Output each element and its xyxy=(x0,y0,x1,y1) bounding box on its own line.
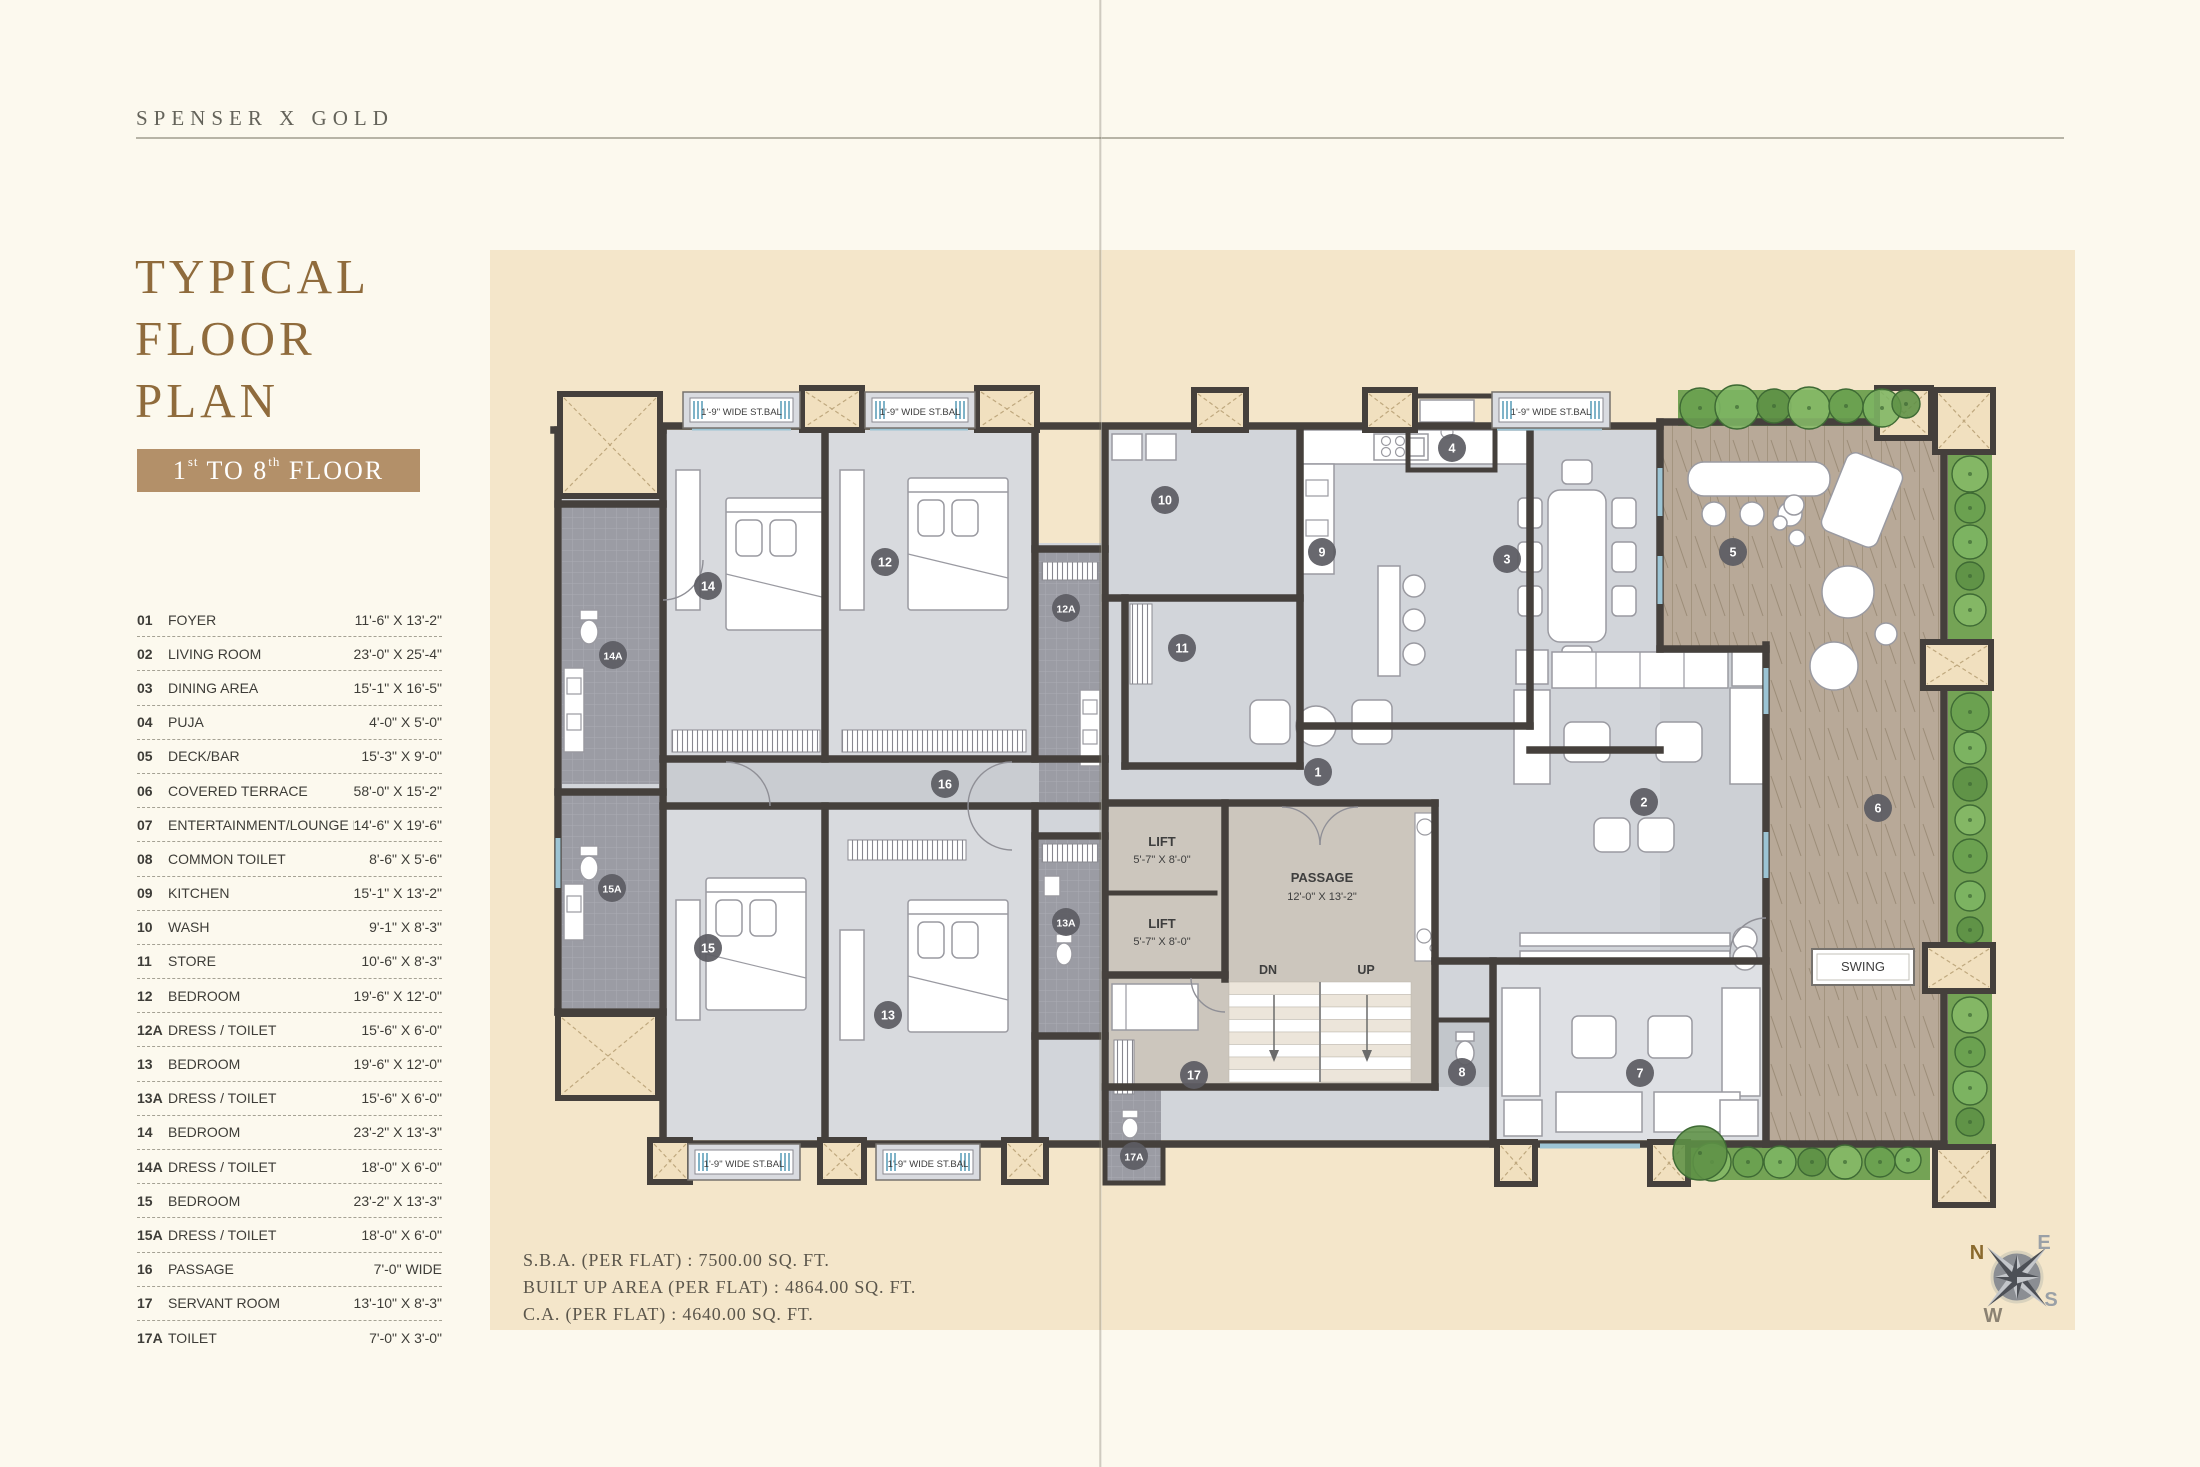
side-table xyxy=(1773,516,1787,530)
svg-text:7: 7 xyxy=(1637,1066,1644,1080)
legend-number: 13A xyxy=(137,1090,168,1106)
balcony-label: 1'-9" WIDE ST.BAL xyxy=(704,1159,785,1170)
legend-room-name: SERVANT ROOM xyxy=(168,1295,354,1311)
dresser xyxy=(840,930,864,1040)
stool xyxy=(1403,643,1425,665)
legend-row: 14BEDROOM23'-2" X 13'-3" xyxy=(137,1116,442,1150)
legend-row: 16PASSAGE7'-0" WIDE xyxy=(137,1253,442,1287)
svg-text:4: 4 xyxy=(1449,441,1456,455)
balcony-label: 1'-9" WIDE ST.BAL xyxy=(701,407,782,418)
svg-text:17A: 17A xyxy=(1124,1151,1144,1163)
bed xyxy=(908,478,1008,610)
stool xyxy=(1740,502,1764,526)
balcony: 1'-9" WIDE ST.BAL xyxy=(1492,392,1610,428)
room-marker-16: 16 xyxy=(931,770,959,798)
stool xyxy=(1403,609,1425,631)
legend-room-name: PASSAGE xyxy=(168,1261,374,1277)
legend-number: 15 xyxy=(137,1193,168,1209)
legend-room-name: TOILET xyxy=(168,1330,369,1346)
wc xyxy=(580,620,598,644)
balcony: 1'-9" WIDE ST.BAL xyxy=(876,1144,980,1180)
lift-label: LIFT xyxy=(1148,916,1175,931)
banner-text: TO 8 xyxy=(199,456,269,486)
room-marker-13A: 13A xyxy=(1052,908,1080,936)
legend-row: 17ATOILET7'-0" X 3'-0" xyxy=(137,1321,442,1354)
deck-chair xyxy=(1810,642,1858,690)
lift-dim: 5'-7" X 8'-0" xyxy=(1133,854,1190,866)
legend-room-name: BEDROOM xyxy=(168,1056,354,1072)
balcony: 1'-9" WIDE ST.BAL xyxy=(865,392,975,428)
legend-room-dimension: 19'-6" X 12'-0" xyxy=(354,988,442,1004)
staircase xyxy=(1229,982,1411,1082)
dresser xyxy=(840,470,864,610)
legend-row: 07ENTERTAINMENT/LOUNGE ROOM14'-6" X 19'-… xyxy=(137,808,442,842)
deck-chair xyxy=(1822,566,1874,618)
stairs-dn-label: DN xyxy=(1259,963,1277,977)
legend-room-dimension: 7'-0" WIDE xyxy=(374,1261,442,1277)
svg-text:9: 9 xyxy=(1319,545,1326,559)
swing-label: SWING xyxy=(1812,949,1914,985)
room-legend: 01FOYER11'-6" X 13'-2"02LIVING ROOM23'-0… xyxy=(137,603,442,1354)
legend-room-name: DRESS / TOILET xyxy=(168,1022,361,1038)
wc xyxy=(1122,1118,1138,1138)
svg-text:6: 6 xyxy=(1875,801,1882,815)
room-marker-7: 7 xyxy=(1626,1059,1654,1087)
bed xyxy=(726,498,826,630)
legend-row: 12BEDROOM19'-6" X 12'-0" xyxy=(137,979,442,1013)
legend-row: 13ADRESS / TOILET15'-6" X 6'-0" xyxy=(137,1082,442,1116)
legend-room-name: BEDROOM xyxy=(168,1193,354,1209)
wardrobe xyxy=(848,840,966,860)
legend-room-name: LIVING ROOM xyxy=(168,646,354,662)
page-fold-line xyxy=(1099,0,1102,1467)
legend-row: 11STORE10'-6" X 8'-3" xyxy=(137,945,442,979)
side-table xyxy=(1789,530,1805,546)
legend-number: 06 xyxy=(137,783,168,799)
legend-room-dimension: 19'-6" X 12'-0" xyxy=(354,1056,442,1072)
svg-text:12A: 12A xyxy=(1056,603,1076,615)
legend-number: 09 xyxy=(137,885,168,901)
lift-dim: 5'-7" X 8'-0" xyxy=(1133,936,1190,948)
balcony-label: 1'-9" WIDE ST.BAL xyxy=(880,407,961,418)
legend-room-name: COMMON TOILET xyxy=(168,851,369,867)
legend-row: 09KITCHEN15'-1" X 13'-2" xyxy=(137,877,442,911)
room-passage-16 xyxy=(663,759,1105,806)
wc xyxy=(580,856,598,880)
legend-room-dimension: 11'-6" X 13'-2" xyxy=(355,612,442,628)
legend-room-dimension: 23'-2" X 13'-3" xyxy=(354,1124,442,1140)
page-title-line: FLOOR xyxy=(135,308,370,370)
svg-text:17: 17 xyxy=(1187,1068,1201,1082)
stairs-up-label: UP xyxy=(1357,963,1374,977)
area-line: S.B.A. (PER FLAT) : 7500.00 SQ. FT. xyxy=(523,1247,916,1274)
legend-room-name: BEDROOM xyxy=(168,1124,354,1140)
passage-dim: 12'-0" X 13'-2" xyxy=(1287,891,1357,903)
legend-row: 15BEDROOM23'-2" X 13'-3" xyxy=(137,1184,442,1218)
legend-row: 10WASH9'-1" X 8'-3" xyxy=(137,911,442,945)
balcony: 1'-9" WIDE ST.BAL xyxy=(688,1144,800,1180)
legend-row: 17SERVANT ROOM13'-10" X 8'-3" xyxy=(137,1287,442,1321)
room-marker-8: 8 xyxy=(1448,1058,1476,1086)
room-marker-6: 6 xyxy=(1864,794,1892,822)
banner-superscript: st xyxy=(188,454,199,470)
legend-number: 12A xyxy=(137,1022,168,1038)
svg-text:SWING: SWING xyxy=(1841,959,1885,974)
legend-room-dimension: 15'-3" X 9'-0" xyxy=(361,748,442,764)
banner-text: 1 xyxy=(173,456,188,486)
legend-room-name: PUJA xyxy=(168,714,369,730)
legend-room-name: BEDROOM xyxy=(168,988,354,1004)
svg-text:2: 2 xyxy=(1641,795,1648,809)
stool xyxy=(1702,502,1726,526)
washer xyxy=(1146,434,1176,460)
legend-number: 02 xyxy=(137,646,168,662)
room-marker-11: 11 xyxy=(1168,634,1196,662)
legend-number: 05 xyxy=(137,748,168,764)
compass-s: S xyxy=(2044,1289,2057,1311)
room-marker-3: 3 xyxy=(1493,545,1521,573)
legend-number: 07 xyxy=(137,817,168,833)
legend-row: 08COMMON TOILET8'-6" X 5'-6" xyxy=(137,842,442,876)
legend-number: 14 xyxy=(137,1124,168,1140)
legend-room-dimension: 14'-6" X 19'-6" xyxy=(354,817,442,833)
room-marker-12: 12 xyxy=(871,548,899,576)
legend-row: 14ADRESS / TOILET18'-0" X 6'-0" xyxy=(137,1150,442,1184)
legend-room-dimension: 13'-10" X 8'-3" xyxy=(354,1295,442,1311)
room-marker-17: 17 xyxy=(1180,1061,1208,1089)
room-marker-5: 5 xyxy=(1719,538,1747,566)
svg-text:15A: 15A xyxy=(602,883,622,895)
svg-text:13A: 13A xyxy=(1056,917,1076,929)
legend-room-dimension: 15'-6" X 6'-0" xyxy=(361,1090,442,1106)
legend-number: 10 xyxy=(137,919,168,935)
legend-room-dimension: 15'-1" X 16'-5" xyxy=(354,680,442,696)
compass-e: E xyxy=(2037,1232,2050,1254)
room-marker-17A: 17A xyxy=(1120,1142,1148,1170)
page-title-line: PLAN xyxy=(135,370,370,432)
legend-row: 03DINING AREA15'-1" X 16'-5" xyxy=(137,671,442,705)
legend-room-dimension: 15'-1" X 13'-2" xyxy=(354,885,442,901)
legend-row: 04PUJA4'-0" X 5'-0" xyxy=(137,706,442,740)
legend-room-name: DECK/BAR xyxy=(168,748,361,764)
legend-room-name: COVERED TERRACE xyxy=(168,783,354,799)
servant-bed xyxy=(1112,984,1198,1030)
bed xyxy=(908,900,1008,1032)
legend-room-name: DINING AREA xyxy=(168,680,354,696)
legend-number: 11 xyxy=(137,953,168,969)
legend-row: 02LIVING ROOM23'-0" X 25'-4" xyxy=(137,637,442,671)
room-marker-13: 13 xyxy=(874,1001,902,1029)
legend-room-dimension: 15'-6" X 6'-0" xyxy=(361,1022,442,1038)
svg-text:1: 1 xyxy=(1315,765,1322,779)
legend-number: 03 xyxy=(137,680,168,696)
wardrobe xyxy=(1042,844,1098,862)
legend-room-name: STORE xyxy=(168,953,361,969)
svg-text:3: 3 xyxy=(1504,552,1511,566)
banner-superscript: th xyxy=(268,454,280,470)
room-marker-1: 1 xyxy=(1304,758,1332,786)
kitchen-island xyxy=(1378,566,1400,676)
wc xyxy=(1056,943,1072,965)
page-title: TYPICAL FLOOR PLAN xyxy=(135,246,370,432)
legend-number: 16 xyxy=(137,1261,168,1277)
legend-row: 05DECK/BAR15'-3" X 9'-0" xyxy=(137,740,442,774)
console-table xyxy=(1520,933,1730,946)
legend-room-dimension: 7'-0" X 3'-0" xyxy=(369,1330,442,1346)
legend-room-name: FOYER xyxy=(168,612,355,628)
svg-text:5: 5 xyxy=(1730,545,1737,559)
svg-text:14A: 14A xyxy=(603,650,623,662)
floorplan-panel: 1'-9" WIDE ST.BAL1'-9" WIDE ST.BAL1'-9" … xyxy=(490,250,2075,1330)
room-marker-9: 9 xyxy=(1308,538,1336,566)
legend-row: 13BEDROOM19'-6" X 12'-0" xyxy=(137,1047,442,1081)
column xyxy=(1194,390,1246,430)
legend-number: 17 xyxy=(137,1295,168,1311)
legend-room-name: KITCHEN xyxy=(168,885,354,901)
legend-room-dimension: 18'-0" X 6'-0" xyxy=(361,1159,442,1175)
room-dress-12A xyxy=(1039,549,1101,806)
passage-label: PASSAGE xyxy=(1291,870,1354,885)
wardrobe xyxy=(842,730,1026,752)
legend-room-dimension: 58'-0" X 15'-2" xyxy=(354,783,442,799)
legend-room-dimension: 23'-2" X 13'-3" xyxy=(354,1193,442,1209)
room-marker-12A: 12A xyxy=(1052,594,1080,622)
washbasin xyxy=(1044,876,1060,896)
legend-room-name: DRESS / TOILET xyxy=(168,1090,361,1106)
room-marker-10: 10 xyxy=(1151,486,1179,514)
legend-row: 15ADRESS / TOILET18'-0" X 6'-0" xyxy=(137,1218,442,1252)
legend-room-name: WASH xyxy=(168,919,369,935)
svg-text:14: 14 xyxy=(701,579,715,593)
svg-text:16: 16 xyxy=(938,777,952,791)
svg-text:15: 15 xyxy=(701,941,715,955)
legend-number: 13 xyxy=(137,1056,168,1072)
legend-number: 15A xyxy=(137,1227,168,1243)
compass-n: N xyxy=(1970,1242,1984,1264)
room-marker-15: 15 xyxy=(694,934,722,962)
legend-room-dimension: 8'-6" X 5'-6" xyxy=(369,851,442,867)
legend-row: 01FOYER11'-6" X 13'-2" xyxy=(137,603,442,637)
dresser xyxy=(676,900,700,1020)
room-marker-14A: 14A xyxy=(599,641,627,669)
floor-range-banner: 1st TO 8th FLOOR xyxy=(137,449,420,492)
room-marker-4: 4 xyxy=(1438,434,1466,462)
legend-room-name: DRESS / TOILET xyxy=(168,1159,361,1175)
legend-number: 12 xyxy=(137,988,168,1004)
legend-number: 08 xyxy=(137,851,168,867)
svg-text:13: 13 xyxy=(881,1008,895,1022)
lift-label: LIFT xyxy=(1148,834,1175,849)
svg-text:8: 8 xyxy=(1459,1065,1466,1079)
legend-row: 06COVERED TERRACE58'-0" X 15'-2" xyxy=(137,774,442,808)
brand-title: SPENSER X GOLD xyxy=(136,106,394,131)
balcony-label: 1'-9" WIDE ST.BAL xyxy=(1511,407,1592,418)
floorplan-drawing: 1'-9" WIDE ST.BAL1'-9" WIDE ST.BAL1'-9" … xyxy=(490,250,2075,1330)
svg-text:10: 10 xyxy=(1158,493,1172,507)
legend-room-dimension: 18'-0" X 6'-0" xyxy=(361,1227,442,1243)
legend-row: 12ADRESS / TOILET15'-6" X 6'-0" xyxy=(137,1013,442,1047)
room-marker-15A: 15A xyxy=(598,874,626,902)
room-marker-2: 2 xyxy=(1630,788,1658,816)
legend-room-dimension: 23'-0" X 25'-4" xyxy=(354,646,442,662)
svg-text:11: 11 xyxy=(1175,641,1188,655)
area-statistics: S.B.A. (PER FLAT) : 7500.00 SQ. FT. BUIL… xyxy=(523,1247,916,1328)
washer xyxy=(1112,434,1142,460)
legend-room-name: DRESS / TOILET xyxy=(168,1227,361,1243)
legend-number: 17A xyxy=(137,1330,168,1346)
store-shelf xyxy=(1130,604,1152,684)
area-line: BUILT UP AREA (PER FLAT) : 4864.00 SQ. F… xyxy=(523,1274,916,1301)
balcony: 1'-9" WIDE ST.BAL xyxy=(683,392,800,428)
compass-w: W xyxy=(1984,1305,2003,1327)
legend-number: 01 xyxy=(137,612,168,628)
legend-room-name: ENTERTAINMENT/LOUNGE ROOM xyxy=(168,817,354,833)
wardrobe xyxy=(672,730,820,752)
side-table xyxy=(1875,623,1897,645)
page-title-line: TYPICAL xyxy=(135,246,370,308)
banner-text: FLOOR xyxy=(280,456,384,486)
stool xyxy=(1403,575,1425,597)
legend-room-dimension: 4'-0" X 5'-0" xyxy=(369,714,442,730)
side-table xyxy=(1784,495,1804,515)
legend-room-dimension: 9'-1" X 8'-3" xyxy=(369,919,442,935)
compass-rose: N E S W xyxy=(1970,1232,2058,1327)
balcony-label: 1'-9" WIDE ST.BAL xyxy=(888,1159,969,1170)
legend-room-dimension: 10'-6" X 8'-3" xyxy=(361,953,442,969)
wardrobe xyxy=(1042,562,1098,580)
svg-text:12: 12 xyxy=(878,555,892,569)
area-line: C.A. (PER FLAT) : 4640.00 SQ. FT. xyxy=(523,1301,916,1328)
legend-number: 14A xyxy=(137,1159,168,1175)
legend-number: 04 xyxy=(137,714,168,730)
room-marker-14: 14 xyxy=(694,572,722,600)
